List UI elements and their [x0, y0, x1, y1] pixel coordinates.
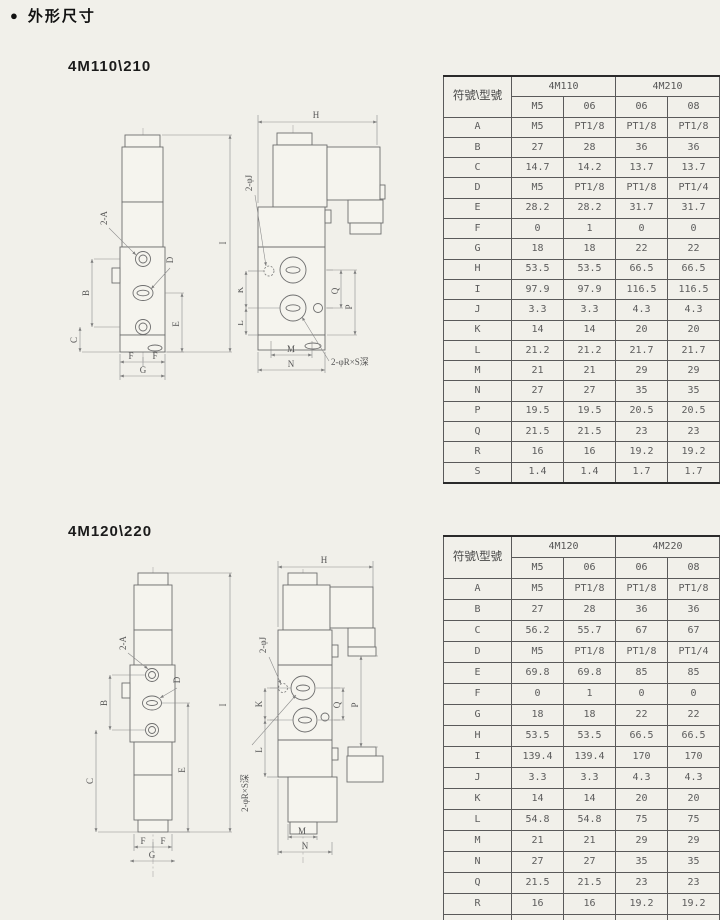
value-cell: 29 [616, 831, 668, 852]
side-tab-bottom [332, 748, 338, 760]
value-cell: 31.7 [616, 198, 668, 218]
value-cell: 116.5 [668, 279, 720, 299]
value-cell: 66.5 [616, 259, 668, 279]
port-label-2a: 2-A [99, 211, 109, 225]
value-cell: 27 [512, 852, 564, 873]
hole-label-2phij: 2-φJ [244, 174, 254, 191]
value-cell: 18 [564, 705, 616, 726]
dim-label-e: E [171, 321, 181, 327]
subcol-cell: M5 [512, 558, 564, 579]
value-cell: 55.7 [564, 621, 616, 642]
symbol-cell: D [444, 178, 512, 198]
group-header-row: 符號\型號 4M120 4M220 [444, 536, 720, 558]
value-cell: 3.3 [564, 300, 616, 320]
valve-body [278, 630, 332, 777]
value-cell: M5 [512, 117, 564, 137]
value-cell: 116.5 [616, 279, 668, 299]
value-cell: 69.8 [512, 663, 564, 684]
value-cell: 35 [616, 381, 668, 401]
value-cell: 75 [668, 810, 720, 831]
value-cell: 53.5 [512, 726, 564, 747]
port-label-d: D [165, 256, 175, 263]
value-cell: 27 [564, 381, 616, 401]
value-cell: 67 [616, 621, 668, 642]
value-cell: 67 [668, 621, 720, 642]
value-cell: 85 [668, 663, 720, 684]
symbol-cell: G [444, 239, 512, 259]
value-cell: 75 [616, 810, 668, 831]
value-cell: 16 [564, 894, 616, 915]
table-row: N27273535 [444, 381, 720, 401]
dim-label-f: F [160, 836, 165, 846]
value-cell: 21.5 [564, 422, 616, 442]
table-row: E28.228.231.731.7 [444, 198, 720, 218]
symbol-cell: A [444, 579, 512, 600]
dimension-table-4m120-4m220: 符號\型號 4M120 4M220 M5 06 06 08 AM5PT1/8PT… [443, 535, 720, 920]
value-cell: 21.5 [512, 873, 564, 894]
symbol-cell: G [444, 705, 512, 726]
value-cell: 36 [616, 137, 668, 157]
symbol-cell: A [444, 117, 512, 137]
corner-cell: 符號\型號 [444, 76, 512, 117]
value-cell: 19.2 [616, 442, 668, 462]
value-cell: 1.7 [668, 915, 720, 920]
value-cell: 21.5 [564, 873, 616, 894]
solenoid-coil-bottom [134, 775, 172, 820]
value-cell: 36 [668, 137, 720, 157]
table-row: I97.997.9116.5116.5 [444, 279, 720, 299]
symbol-cell: J [444, 768, 512, 789]
value-cell: 22 [668, 239, 720, 259]
dim-label-l: L [254, 747, 264, 753]
value-cell: 36 [616, 600, 668, 621]
symbol-cell: D [444, 642, 512, 663]
solenoid-coil-top [134, 585, 172, 630]
value-cell: 4.3 [668, 768, 720, 789]
table-row: AM5PT1/8PT1/8PT1/8 [444, 117, 720, 137]
dim-label-g: G [140, 365, 147, 375]
value-cell: 21 [564, 831, 616, 852]
value-cell: 35 [616, 852, 668, 873]
corner-cell: 符號\型號 [444, 536, 512, 579]
value-cell: 14.7 [512, 158, 564, 178]
value-cell: 170 [668, 747, 720, 768]
symbol-cell: H [444, 259, 512, 279]
connector-block-bottom [347, 756, 383, 782]
value-cell: PT1/8 [616, 117, 668, 137]
value-cell: 97.9 [512, 279, 564, 299]
solenoid-coil-bottom [288, 777, 337, 822]
value-cell: 16 [512, 442, 564, 462]
value-cell: PT1/8 [616, 642, 668, 663]
table-row: B27283636 [444, 137, 720, 157]
dim-label-b: B [99, 700, 109, 706]
hole-label-2phir: 2-φR×S深 [240, 774, 250, 812]
manual-override-cap-top [138, 573, 168, 585]
value-cell: 54.8 [564, 810, 616, 831]
value-cell: 1 [564, 219, 616, 239]
value-cell: 4.3 [668, 300, 720, 320]
symbol-cell: B [444, 600, 512, 621]
dim-label-i: I [218, 704, 228, 707]
value-cell: 27 [512, 381, 564, 401]
dim-label-n: N [288, 359, 295, 369]
value-cell: PT1/8 [564, 178, 616, 198]
symbol-cell: S [444, 915, 512, 920]
symbol-cell: E [444, 663, 512, 684]
table-row: I139.4139.4170170 [444, 747, 720, 768]
dim-label-i: I [218, 242, 228, 245]
drawing-4m120-front-view: H K L Q P M N [240, 545, 445, 915]
value-cell: M5 [512, 178, 564, 198]
manual-override-cap-top [288, 573, 317, 585]
dim-label-h: H [313, 110, 320, 120]
valve-body [258, 207, 325, 335]
value-cell: 97.9 [564, 279, 616, 299]
value-cell: 139.4 [512, 747, 564, 768]
value-cell: 19.2 [668, 442, 720, 462]
table-row: G18182222 [444, 239, 720, 259]
bullet-icon: ● [10, 8, 20, 23]
value-cell: PT1/4 [668, 642, 720, 663]
table-row: S1.41.41.71.7 [444, 915, 720, 920]
value-cell: 4.3 [616, 768, 668, 789]
group-header-row: 符號\型號 4M110 4M210 [444, 76, 720, 97]
symbol-cell: M [444, 831, 512, 852]
value-cell: 3.3 [564, 768, 616, 789]
table-row: F0100 [444, 219, 720, 239]
value-cell: 31.7 [668, 198, 720, 218]
value-cell: 13.7 [668, 158, 720, 178]
symbol-cell: S [444, 462, 512, 483]
dim-label-h: H [321, 555, 328, 565]
subcol-cell: 08 [668, 97, 720, 117]
value-cell: 1.4 [564, 462, 616, 483]
value-cell: 28.2 [564, 198, 616, 218]
table-row: G18182222 [444, 705, 720, 726]
dim-label-f: F [140, 836, 145, 846]
value-cell: 22 [616, 705, 668, 726]
dim-label-c: C [69, 337, 79, 343]
value-cell: 20 [668, 320, 720, 340]
value-cell: 27 [512, 600, 564, 621]
connector-step-top [348, 628, 375, 647]
subcol-cell: 08 [668, 558, 720, 579]
table-row: N27273535 [444, 852, 720, 873]
dim-label-n: N [302, 841, 309, 851]
value-cell: 36 [668, 600, 720, 621]
dim-label-g: G [149, 850, 156, 860]
value-cell: 4.3 [616, 300, 668, 320]
value-cell: 139.4 [564, 747, 616, 768]
dim-label-k: K [238, 286, 245, 293]
connector-notch [380, 185, 385, 199]
value-cell: 53.5 [564, 726, 616, 747]
symbol-cell: R [444, 442, 512, 462]
model-group-cell: 4M110 [512, 76, 616, 97]
value-cell: 0 [668, 684, 720, 705]
subcol-cell: M5 [512, 97, 564, 117]
dim-label-f: F [152, 351, 157, 361]
value-cell: 14 [564, 789, 616, 810]
dim-label-k: K [254, 700, 264, 707]
value-cell: 35 [668, 381, 720, 401]
dim-label-m: M [298, 826, 306, 836]
symbol-cell: H [444, 726, 512, 747]
symbol-cell: N [444, 852, 512, 873]
value-cell: 35 [668, 852, 720, 873]
port-label-d: D [172, 676, 182, 683]
drawing-4m110-side-view: B C E F F G I 2-A D [62, 100, 247, 400]
dim-label-e: E [177, 767, 187, 773]
value-cell: 20.5 [668, 401, 720, 421]
value-cell: 14 [564, 320, 616, 340]
subcol-cell: 06 [616, 558, 668, 579]
side-tab [122, 683, 130, 698]
dim-label-m: M [287, 344, 295, 354]
side-tab [325, 210, 331, 223]
value-cell: PT1/8 [616, 178, 668, 198]
drawing-4m110-front-view: H K L Q P M N 2-φJ [238, 95, 443, 395]
symbol-cell: B [444, 137, 512, 157]
symbol-cell: L [444, 340, 512, 360]
symbol-cell: I [444, 279, 512, 299]
connector-block-top [330, 587, 373, 628]
value-cell: 21 [512, 831, 564, 852]
value-cell: 53.5 [564, 259, 616, 279]
dim-label-q: Q [330, 287, 340, 294]
dim-label-f: F [128, 351, 133, 361]
value-cell: 18 [512, 705, 564, 726]
table-row: F0100 [444, 684, 720, 705]
symbol-cell: F [444, 684, 512, 705]
value-cell: 0 [616, 684, 668, 705]
table-row: DM5PT1/8PT1/8PT1/4 [444, 642, 720, 663]
table-row: H53.553.566.566.5 [444, 259, 720, 279]
symbol-cell: J [444, 300, 512, 320]
connector-block [327, 147, 380, 200]
value-cell: 1.4 [512, 462, 564, 483]
value-cell: PT1/8 [564, 117, 616, 137]
table-row: C14.714.213.713.7 [444, 158, 720, 178]
page-title: ● 外形尺寸 [10, 5, 96, 26]
value-cell: 19.5 [512, 401, 564, 421]
knurled-nut [350, 223, 381, 234]
value-cell: 29 [668, 361, 720, 381]
dim-label-l: L [238, 320, 245, 326]
value-cell: PT1/8 [564, 579, 616, 600]
table-row: J3.33.34.34.3 [444, 768, 720, 789]
value-cell: 16 [564, 442, 616, 462]
symbol-cell: F [444, 219, 512, 239]
table-row: K14142020 [444, 320, 720, 340]
adapter-block [122, 202, 163, 247]
value-cell: 23 [616, 422, 668, 442]
value-cell: 1 [564, 684, 616, 705]
manual-override-cap [277, 133, 312, 145]
side-tab-top [332, 645, 338, 657]
symbol-cell: P [444, 401, 512, 421]
value-cell: 21 [512, 361, 564, 381]
value-cell: 21.7 [616, 340, 668, 360]
value-cell: 3.3 [512, 768, 564, 789]
value-cell: 16 [512, 894, 564, 915]
dim-label-c: C [85, 778, 95, 784]
value-cell: 22 [668, 705, 720, 726]
symbol-cell: N [444, 381, 512, 401]
value-cell: 13.7 [616, 158, 668, 178]
value-cell: 1.7 [616, 915, 668, 920]
symbol-cell: E [444, 198, 512, 218]
symbol-cell: K [444, 789, 512, 810]
table-row: B27283636 [444, 600, 720, 621]
adapter-block-top [134, 630, 172, 665]
model-group-cell: 4M210 [616, 76, 720, 97]
value-cell: 53.5 [512, 259, 564, 279]
value-cell: PT1/4 [668, 178, 720, 198]
page-title-text: 外形尺寸 [28, 5, 96, 26]
symbol-cell: M [444, 361, 512, 381]
value-cell: 14 [512, 320, 564, 340]
value-cell: 0 [668, 219, 720, 239]
dim-label-b: B [81, 290, 91, 296]
value-cell: 20 [616, 320, 668, 340]
catalog-page: ● 外形尺寸 4M110\210 4M120\220 B [0, 0, 720, 920]
value-cell: 66.5 [668, 726, 720, 747]
value-cell: 21.5 [512, 422, 564, 442]
table-row: M21212929 [444, 361, 720, 381]
value-cell: 1.4 [512, 915, 564, 920]
table-row: DM5PT1/8PT1/8PT1/4 [444, 178, 720, 198]
subcol-cell: 06 [564, 558, 616, 579]
table-row: E69.869.88585 [444, 663, 720, 684]
value-cell: 14 [512, 789, 564, 810]
value-cell: 23 [668, 422, 720, 442]
value-cell: PT1/8 [616, 579, 668, 600]
hole-label-2phij: 2-φJ [258, 636, 268, 653]
table-row: L54.854.87575 [444, 810, 720, 831]
value-cell: PT1/8 [668, 579, 720, 600]
connector-step [348, 200, 383, 223]
value-cell: 0 [512, 684, 564, 705]
dim-label-q: Q [332, 701, 342, 708]
table-row: S1.41.41.71.7 [444, 462, 720, 483]
value-cell: 1.7 [668, 462, 720, 483]
table-row: P19.519.520.520.5 [444, 401, 720, 421]
value-cell: 18 [564, 239, 616, 259]
manual-override-cap [125, 135, 160, 147]
table-row: R161619.219.2 [444, 894, 720, 915]
value-cell: 20.5 [616, 401, 668, 421]
solenoid-coil [273, 145, 327, 207]
value-cell: 21.2 [564, 340, 616, 360]
table-row: J3.33.34.34.3 [444, 300, 720, 320]
value-cell: 66.5 [616, 726, 668, 747]
table-row: AM5PT1/8PT1/8PT1/8 [444, 579, 720, 600]
value-cell: PT1/8 [564, 642, 616, 663]
value-cell: 69.8 [564, 663, 616, 684]
value-cell: 19.2 [616, 894, 668, 915]
value-cell: 19.2 [668, 894, 720, 915]
value-cell: 85 [616, 663, 668, 684]
value-cell: 23 [668, 873, 720, 894]
value-cell: 21.7 [668, 340, 720, 360]
table-row: Q21.521.52323 [444, 873, 720, 894]
value-cell: 28.2 [512, 198, 564, 218]
value-cell: 14.2 [564, 158, 616, 178]
port-label-2a: 2-A [118, 636, 128, 650]
table-row: H53.553.566.566.5 [444, 726, 720, 747]
value-cell: 1.7 [616, 462, 668, 483]
dimension-table-4m110-4m210: 符號\型號 4M110 4M210 M5 06 06 08 AM5PT1/8PT… [443, 75, 720, 484]
value-cell: 66.5 [668, 259, 720, 279]
dim-label-p: P [344, 304, 354, 309]
table-row: M21212929 [444, 831, 720, 852]
knurled-nut-bottom [348, 747, 376, 756]
value-cell: 0 [512, 219, 564, 239]
symbol-cell: C [444, 621, 512, 642]
solenoid-coil [122, 147, 163, 202]
value-cell: 20 [616, 789, 668, 810]
dim-label-p: P [350, 702, 360, 707]
symbol-cell: C [444, 158, 512, 178]
value-cell: 29 [668, 831, 720, 852]
value-cell: 21 [564, 361, 616, 381]
section-title-4m120: 4M120\220 [68, 523, 152, 540]
value-cell: M5 [512, 579, 564, 600]
value-cell: 54.8 [512, 810, 564, 831]
symbol-cell: L [444, 810, 512, 831]
value-cell: 20 [668, 789, 720, 810]
table-row: Q21.521.52323 [444, 422, 720, 442]
value-cell: 28 [564, 600, 616, 621]
valve-body [130, 665, 175, 742]
symbol-cell: I [444, 747, 512, 768]
table-row: K14142020 [444, 789, 720, 810]
table-row: L21.221.221.721.7 [444, 340, 720, 360]
value-cell: 21.2 [512, 340, 564, 360]
hole-label-2phir: 2-φR×S深 [331, 357, 369, 367]
value-cell: 28 [564, 137, 616, 157]
table-row: C56.255.76767 [444, 621, 720, 642]
value-cell: 19.5 [564, 401, 616, 421]
value-cell: M5 [512, 642, 564, 663]
side-tab [112, 268, 120, 283]
value-cell: 0 [616, 219, 668, 239]
solenoid-coil-top [283, 585, 330, 630]
value-cell: 29 [616, 361, 668, 381]
subcol-cell: 06 [564, 97, 616, 117]
value-cell: 1.4 [564, 915, 616, 920]
model-group-cell: 4M120 [512, 536, 616, 558]
manual-override-cap-bottom [138, 820, 168, 832]
value-cell: 170 [616, 747, 668, 768]
symbol-cell: Q [444, 873, 512, 894]
value-cell: 18 [512, 239, 564, 259]
value-cell: 22 [616, 239, 668, 259]
symbol-cell: K [444, 320, 512, 340]
value-cell: 3.3 [512, 300, 564, 320]
subcol-cell: 06 [616, 97, 668, 117]
drawing-4m120-side-view: B C E I F F G 2-A D [70, 555, 250, 915]
knurled-nut-top [348, 647, 376, 656]
table-row: R161619.219.2 [444, 442, 720, 462]
valve-body [120, 247, 165, 335]
symbol-cell: Q [444, 422, 512, 442]
base-plate [120, 335, 165, 352]
model-group-cell: 4M220 [616, 536, 720, 558]
adapter-block-bottom [134, 742, 172, 775]
